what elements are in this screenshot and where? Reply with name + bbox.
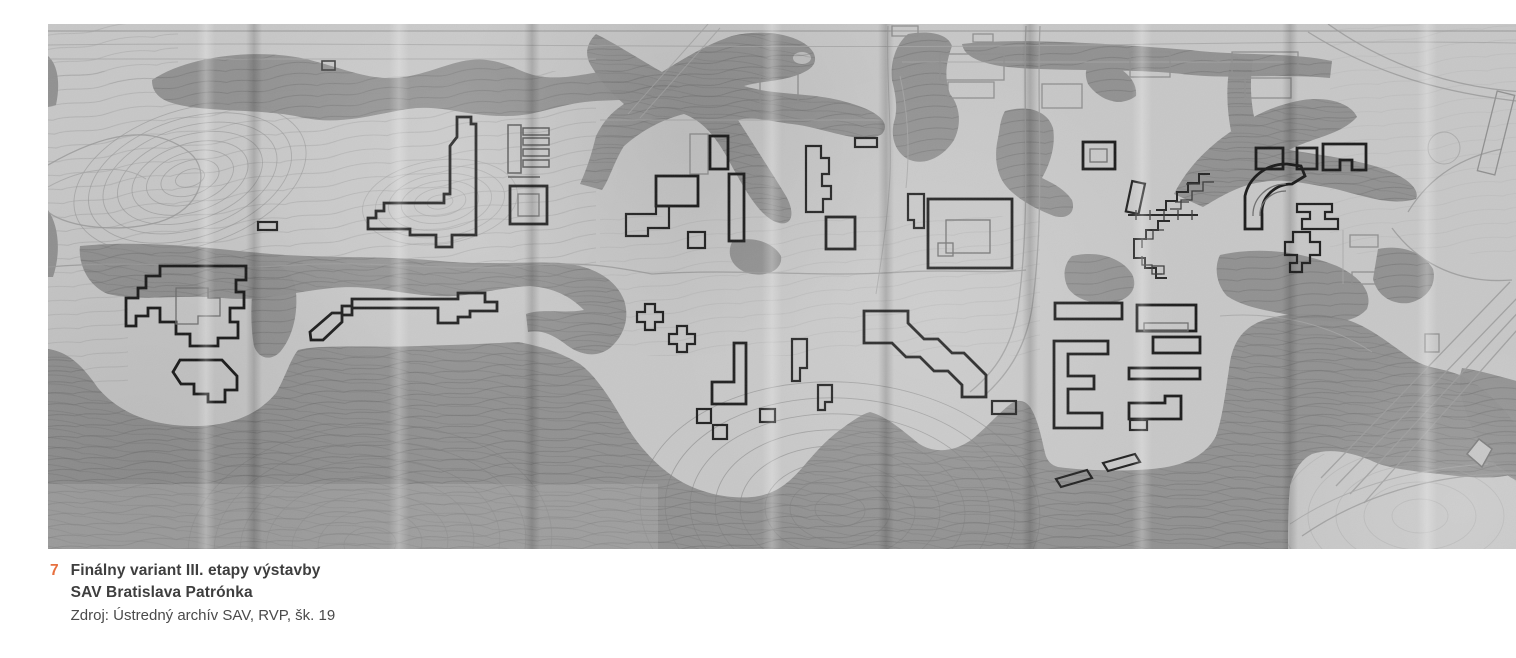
scan-grain xyxy=(48,24,1516,549)
caption-text-block: Finálny variant III. etapy výstavby SAV … xyxy=(71,560,336,626)
figure-number: 7 xyxy=(50,560,59,582)
caption-source: Zdroj: Ústredný archív SAV, RVP, šk. 19 xyxy=(71,605,336,626)
figure-7-site-plan: 7 Finálny variant III. etapy výstavby SA… xyxy=(40,16,1516,642)
caption-title-line1: Finálny variant III. etapy výstavby xyxy=(71,560,336,582)
figure-caption: 7 Finálny variant III. etapy výstavby SA… xyxy=(50,560,335,626)
caption-title-line2: SAV Bratislava Patrónka xyxy=(71,582,336,604)
site-plan-map-scan xyxy=(40,16,1516,549)
